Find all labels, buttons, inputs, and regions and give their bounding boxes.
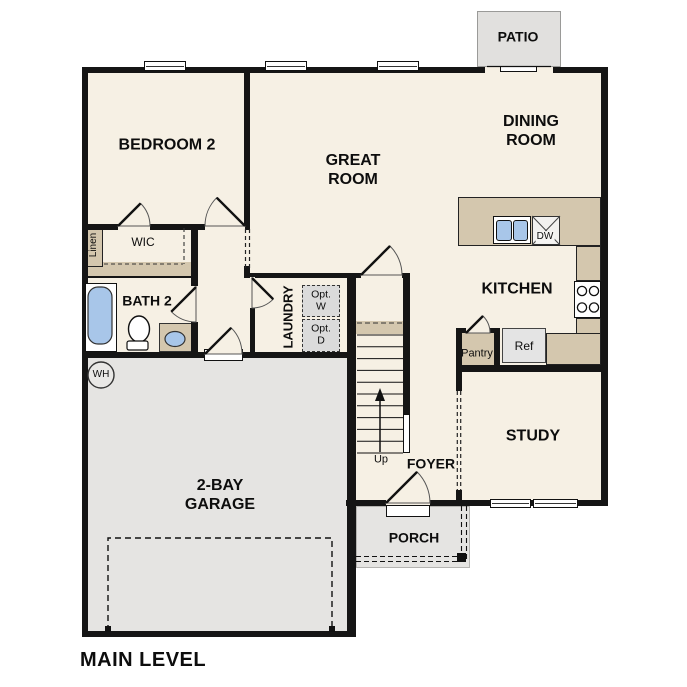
kitchen-counter-lower	[546, 333, 601, 365]
optional-dryer-label: Opt. D	[306, 323, 336, 346]
window-greatroom-1	[265, 61, 307, 71]
wall-pantry-top-left	[456, 328, 466, 333]
wall-kitchen-bottom	[456, 365, 608, 372]
kitchen-label: KITCHEN	[481, 281, 552, 300]
dw-label: DW	[536, 231, 555, 243]
cooktop	[574, 281, 601, 318]
wall-stair-right	[403, 273, 410, 414]
up-label: Up	[374, 454, 388, 467]
wall-garage-bottom	[82, 631, 356, 637]
window-study-2	[533, 499, 578, 508]
level-title: MAIN LEVEL	[80, 649, 206, 672]
window-bedroom	[144, 61, 186, 71]
wic-label: WIC	[131, 235, 154, 249]
wall-bath-top-line	[88, 276, 191, 278]
foyer-label: FOYER	[407, 456, 455, 473]
wall-right	[601, 67, 608, 506]
bath-vanity	[159, 323, 192, 352]
tub-surround	[85, 283, 117, 352]
kitchen-sink-box	[493, 216, 531, 244]
window-greatroom-2	[377, 61, 419, 71]
ref-label: Ref	[515, 339, 534, 353]
pantry-label: Pantry	[461, 348, 493, 361]
kitchen-counter-mid	[576, 318, 601, 334]
stair-landing	[356, 321, 403, 334]
wall-study-left-lower	[456, 490, 462, 506]
front-door-stoop	[386, 505, 430, 517]
wh-label: WH	[93, 369, 110, 381]
opening-bedroom-door	[205, 224, 245, 230]
dining-room-label: DINING ROOM	[491, 113, 571, 151]
porch-label: PORCH	[389, 530, 440, 547]
patio-slider-door	[500, 66, 537, 72]
wall-bedroom-divider	[244, 73, 250, 224]
wall-pantry-top-right	[488, 328, 500, 333]
wall-pantry-right	[494, 328, 500, 372]
garage-label: 2-BAY GARAGE	[180, 477, 260, 515]
garage-entry-threshold	[204, 349, 243, 361]
bath2-label: BATH 2	[122, 293, 172, 310]
laundry-label: LAUNDRY	[280, 285, 295, 348]
patio-label: PATIO	[498, 29, 539, 46]
wall-center-vertical	[347, 273, 356, 637]
opening-wic-door	[118, 224, 150, 230]
stair-railing	[403, 414, 410, 453]
linen-label: Linen	[88, 233, 100, 257]
kitchen-counter-upper	[576, 246, 601, 281]
bedroom2-label: BEDROOM 2	[119, 137, 216, 156]
opening-laundry-door	[250, 277, 255, 308]
study-label: STUDY	[506, 428, 560, 447]
opening-bath-door	[191, 286, 198, 322]
great-room-label: GREAT ROOM	[321, 152, 385, 190]
window-study-1	[490, 499, 531, 508]
floor-plan: PATIO DINING ROOM GREAT ROOM BEDROOM 2 K…	[0, 0, 687, 687]
optional-washer-label: Opt. W	[306, 289, 336, 312]
opening-stair-door	[361, 273, 402, 278]
